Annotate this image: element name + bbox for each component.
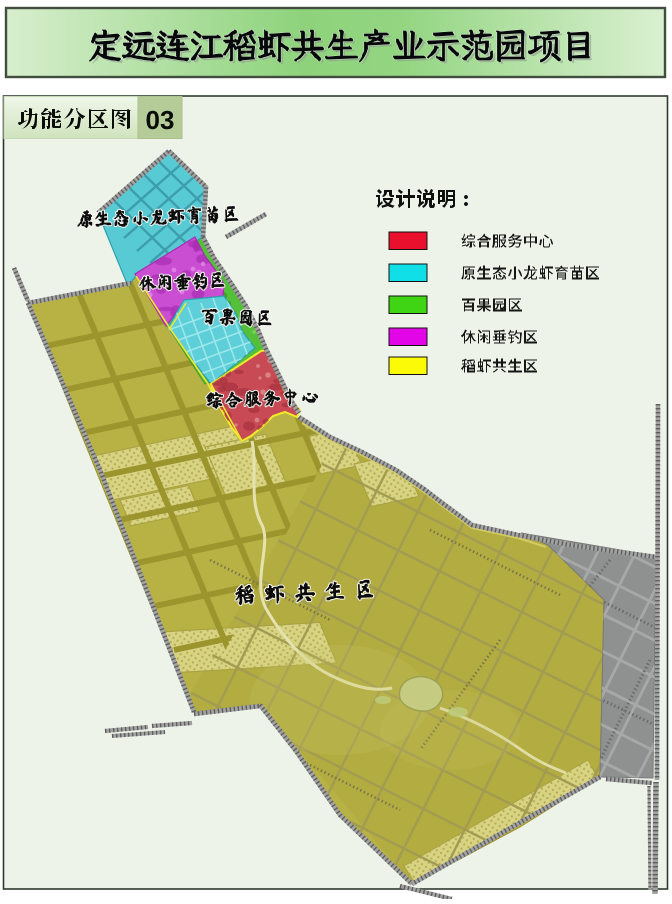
svg-text:03: 03 — [146, 105, 175, 135]
